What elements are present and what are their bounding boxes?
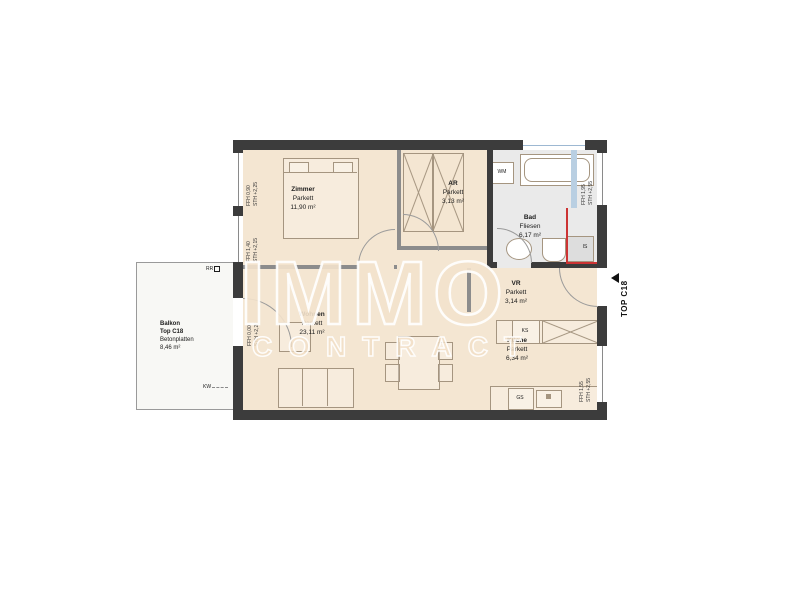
bad-floor-label: Fliesen bbox=[506, 223, 554, 232]
chair bbox=[385, 364, 400, 382]
kw-tag: KW bbox=[203, 384, 228, 390]
annotation-window-right-top: FFH 1,95 STH +2,55 bbox=[581, 157, 596, 205]
ar-name: AR bbox=[432, 180, 474, 189]
rr-text: RR bbox=[206, 266, 213, 272]
gs-text: GS bbox=[516, 395, 523, 401]
watermark-contract: CONTRACT bbox=[252, 331, 537, 363]
annotation-window-left-top: FFH 0,90 STH +2,25 bbox=[246, 158, 261, 206]
balkon-name: Balkon bbox=[160, 320, 224, 328]
bad-name: Bad bbox=[506, 214, 554, 223]
shaft-wall-red-h bbox=[566, 262, 597, 264]
balkon-floor: Betonplatten bbox=[160, 336, 224, 344]
pillow bbox=[333, 162, 353, 173]
rainpipe-square-icon bbox=[214, 266, 220, 272]
window-left-top bbox=[233, 153, 243, 206]
window-right-bottom bbox=[597, 346, 607, 402]
is-text: IS bbox=[583, 244, 588, 250]
bad-area: 6,17 m² bbox=[506, 232, 554, 241]
chair bbox=[438, 364, 453, 382]
shaft-label: IS bbox=[578, 240, 592, 254]
dishwasher-label: GS bbox=[508, 388, 532, 408]
kitchen-sink bbox=[536, 390, 562, 408]
zimmer-floor: Parkett bbox=[272, 195, 334, 204]
kw-text: KW bbox=[203, 384, 211, 390]
ar-floor: Parkett bbox=[432, 189, 474, 198]
sofa-cushion-line bbox=[302, 368, 303, 406]
balkon-unit: Top C18 bbox=[160, 328, 224, 336]
sofa bbox=[278, 368, 354, 408]
wall-bottom bbox=[233, 410, 607, 420]
balkon-area: 8,46 m² bbox=[160, 344, 224, 352]
room-label-zimmer: Zimmer Parkett 11,90 m² bbox=[272, 186, 334, 212]
glass-partition bbox=[571, 150, 577, 208]
wm-text: WM bbox=[498, 169, 507, 175]
kw-dash-line bbox=[212, 387, 228, 388]
unit-marker-top-c18: TOP C18 bbox=[620, 273, 629, 317]
entrance-door-opening bbox=[597, 268, 607, 306]
shaft-wall-red-v bbox=[566, 208, 568, 264]
rainpipe-tag: RR bbox=[206, 266, 220, 272]
room-label-balkon: Balkon Top C18 Betonplatten 8,46 m² bbox=[160, 320, 224, 352]
sink-tap bbox=[546, 394, 551, 399]
window-top-bath bbox=[523, 140, 585, 150]
zimmer-area: 11,90 m² bbox=[272, 204, 334, 213]
partition-zimmer-ar bbox=[397, 150, 401, 250]
washing-machine-label: WM bbox=[492, 162, 512, 182]
entrance-arrow-icon bbox=[611, 273, 619, 283]
annotation-window-right-bottom: FFH 1,55 STH +2,55 bbox=[579, 354, 594, 402]
zimmer-name: Zimmer bbox=[272, 186, 334, 195]
pillow bbox=[289, 162, 309, 173]
kitchen-tall-cabinet bbox=[542, 320, 599, 344]
floorplan-canvas: WM KS GS IS Zimmer Parkett 11,90 m² AR P… bbox=[0, 0, 800, 600]
ar-area: 3,13 m² bbox=[432, 198, 474, 207]
window-right-top bbox=[597, 153, 607, 205]
room-label-ar: AR Parkett 3,13 m² bbox=[432, 180, 474, 206]
sofa-cushion-line bbox=[327, 368, 328, 406]
room-label-bad: Bad Fliesen 6,17 m² bbox=[506, 214, 554, 240]
toilet bbox=[542, 238, 566, 262]
